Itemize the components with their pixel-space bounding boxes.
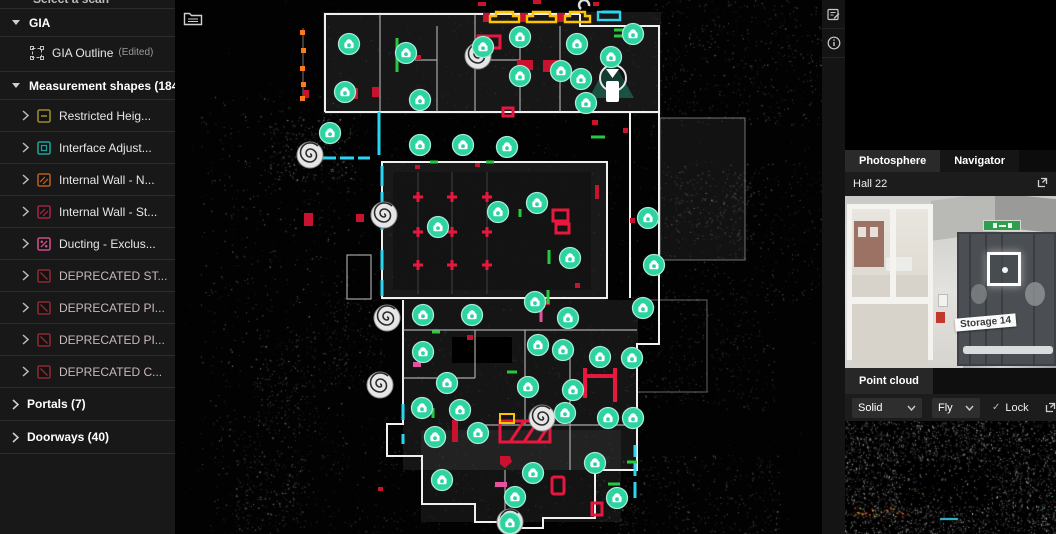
layers-sidebar: Select a scan GIA GIA Outline (Edited) M… — [0, 0, 175, 534]
scan-marker[interactable] — [563, 380, 584, 401]
caret-down-icon — [12, 20, 20, 25]
scan-marker[interactable] — [510, 66, 531, 87]
scan-marker[interactable] — [335, 82, 356, 103]
scan-marker[interactable] — [585, 453, 606, 474]
porthole-right — [1025, 282, 1045, 306]
sidebar-item-shape-8[interactable]: DEPRECATED C... — [0, 356, 175, 388]
item-suffix: (Edited) — [118, 47, 153, 58]
photosphere-nav-marker[interactable] — [987, 252, 1021, 286]
location-row: Hall 22 — [845, 172, 1056, 196]
scan-marker[interactable] — [413, 305, 434, 326]
scan-marker[interactable] — [607, 488, 628, 509]
fire-alarm — [936, 312, 945, 323]
canvas-tool-strip — [822, 0, 845, 534]
chevron-right-icon[interactable] — [22, 302, 29, 313]
tab-photosphere[interactable]: Photosphere — [845, 150, 940, 172]
clipped-item-label: Select a scan — [33, 0, 109, 6]
chevron-right-icon — [12, 432, 19, 443]
preview-tabbar: PhotosphereNavigator — [845, 150, 1056, 172]
scan-marker[interactable] — [410, 90, 431, 111]
survey-target — [529, 405, 555, 431]
sidebar-item-shape-1[interactable]: Interface Adjust... — [0, 132, 175, 164]
chevron-down-icon — [965, 405, 974, 411]
chevron-right-icon[interactable] — [22, 270, 29, 281]
scan-marker[interactable] — [425, 427, 446, 448]
item-label: GIA Outline — [52, 46, 113, 60]
scan-marker[interactable] — [505, 487, 526, 508]
group-label: Doorways (40) — [27, 430, 109, 444]
scan-marker[interactable] — [462, 305, 483, 326]
lock-label: Lock — [1005, 402, 1028, 414]
sidebar-item-clipped[interactable]: Select a scan — [0, 0, 175, 9]
item-label: DEPRECATED PI... — [59, 301, 165, 315]
info-button[interactable] — [822, 29, 845, 58]
scan-marker[interactable] — [413, 342, 434, 363]
scan-marker[interactable] — [622, 348, 643, 369]
sidebar-item-shape-3[interactable]: Internal Wall - St... — [0, 196, 175, 228]
door-push-bar — [963, 346, 1053, 354]
scan-marker[interactable] — [623, 24, 644, 45]
shape-type-icon — [37, 141, 51, 155]
open-photosphere-button[interactable] — [1037, 177, 1048, 191]
point-cloud-header: Point cloud — [845, 368, 1056, 394]
scan-marker[interactable] — [576, 93, 597, 114]
point-cloud-controls: Solid Fly ✓ Lock — [845, 394, 1056, 421]
scan-marker[interactable] — [623, 408, 644, 429]
scan-marker[interactable] — [560, 248, 581, 269]
exit-sign — [983, 220, 1021, 231]
nav-mode-select[interactable]: Fly — [932, 398, 980, 418]
render-mode-value: Solid — [858, 402, 882, 414]
scan-marker[interactable] — [518, 377, 539, 398]
scan-marker[interactable] — [644, 255, 665, 276]
item-label: Internal Wall - St... — [59, 205, 157, 219]
scan-marker[interactable] — [598, 408, 619, 429]
selection-outline-icon — [30, 46, 44, 60]
point-cloud-tab[interactable]: Point cloud — [845, 368, 933, 394]
shape-type-icon — [37, 205, 51, 219]
notes-icon — [827, 8, 840, 21]
scan-marker[interactable] — [500, 513, 521, 534]
survey-target — [371, 202, 397, 228]
chevron-right-icon[interactable] — [22, 206, 29, 217]
scan-marker[interactable] — [571, 69, 592, 90]
checkmark-icon: ✓ — [992, 402, 1000, 413]
scan-marker[interactable] — [525, 292, 546, 313]
chevron-right-icon[interactable] — [22, 334, 29, 345]
caret-down-icon — [12, 83, 20, 88]
measurement-items: Restricted Heig...Interface Adjust...Int… — [0, 100, 175, 388]
tab-navigator[interactable]: Navigator — [940, 150, 1019, 172]
scan-marker[interactable] — [567, 34, 588, 55]
shape-type-icon — [37, 237, 51, 251]
external-link-icon — [1045, 402, 1056, 413]
group-label: Portals (7) — [27, 397, 86, 411]
shape-type-icon — [37, 365, 51, 379]
external-link-icon — [1037, 177, 1048, 188]
curl-mark — [579, 0, 589, 9]
group-label: Measurement shapes (184) — [29, 79, 175, 93]
scan-marker[interactable] — [633, 298, 654, 319]
scan-marker[interactable] — [428, 217, 449, 238]
scan-marker[interactable] — [523, 463, 544, 484]
scan-marker[interactable] — [396, 43, 417, 64]
scan-marker[interactable] — [527, 193, 548, 214]
shape-type-icon — [37, 173, 51, 187]
annotation-overlay — [175, 0, 822, 534]
shape-type-icon — [37, 301, 51, 315]
folder-button[interactable] — [183, 10, 207, 30]
sidebar-group-doorways[interactable]: Doorways (40) — [0, 421, 175, 454]
folder-icon — [183, 10, 203, 26]
sidebar-item-shape-4[interactable]: Ducting - Exclus... — [0, 228, 175, 260]
photosphere-preview[interactable]: Storage 14 — [845, 196, 1056, 368]
item-label: DEPRECATED ST... — [59, 269, 167, 283]
render-mode-select[interactable]: Solid — [852, 398, 922, 418]
sidebar-group-gia[interactable]: GIA — [0, 9, 175, 37]
scan-marker[interactable] — [453, 135, 474, 156]
scan-marker[interactable] — [590, 347, 611, 368]
survey-target — [367, 372, 393, 398]
shape-type-icon — [37, 269, 51, 283]
location-label: Hall 22 — [853, 178, 887, 190]
point-cloud-preview[interactable] — [845, 421, 1056, 534]
floorplan-canvas[interactable] — [175, 0, 822, 534]
scan-marker[interactable] — [437, 373, 458, 394]
scan-marker[interactable] — [510, 27, 531, 48]
survey-target — [374, 305, 400, 331]
item-label: Restricted Heig... — [59, 109, 151, 123]
scan-marker[interactable] — [412, 398, 433, 419]
chevron-down-icon — [907, 405, 916, 411]
open-point-cloud-button[interactable] — [1045, 402, 1056, 413]
chevron-right-icon[interactable] — [22, 110, 29, 121]
scan-marker[interactable] — [432, 470, 453, 491]
nav-mode-value: Fly — [938, 402, 953, 414]
info-icon — [827, 36, 841, 50]
scan-marker-selected[interactable] — [601, 47, 622, 68]
sidebar-item-gia-outline[interactable]: GIA Outline (Edited) — [0, 37, 175, 68]
scan-marker[interactable] — [488, 202, 509, 223]
scan-marker[interactable] — [497, 137, 518, 158]
chevron-right-icon[interactable] — [22, 238, 29, 249]
item-label: Interface Adjust... — [59, 141, 152, 155]
scan-marker[interactable] — [339, 34, 360, 55]
sidebar-group-measurement-shapes[interactable]: Measurement shapes (184) — [0, 72, 175, 100]
item-label: DEPRECATED PI... — [59, 333, 165, 347]
survey-target — [297, 142, 323, 168]
notes-button[interactable] — [822, 0, 845, 29]
sidebar-group-portals[interactable]: Portals (7) — [0, 388, 175, 421]
item-label: DEPRECATED C... — [59, 365, 162, 379]
lock-checkbox[interactable]: ✓ Lock — [992, 402, 1029, 414]
scan-marker[interactable] — [468, 423, 489, 444]
chevron-right-icon[interactable] — [22, 366, 29, 377]
group-label: GIA — [29, 16, 50, 30]
item-label: Internal Wall - N... — [59, 173, 155, 187]
scan-marker[interactable] — [410, 135, 431, 156]
scan-marker[interactable] — [320, 123, 341, 144]
shape-type-icon — [37, 109, 51, 123]
scan-marker[interactable] — [551, 61, 572, 82]
chevron-right-icon[interactable] — [22, 142, 29, 153]
window — [847, 204, 933, 360]
scan-marker[interactable] — [638, 208, 659, 229]
chevron-right-icon — [12, 399, 19, 410]
sidebar-item-shape-7[interactable]: DEPRECATED PI... — [0, 324, 175, 356]
sidebar-item-shape-0[interactable]: Restricted Heig... — [0, 100, 175, 132]
scan-marker[interactable] — [558, 308, 579, 329]
porthole-left — [971, 284, 987, 304]
scan-marker[interactable] — [450, 400, 471, 421]
sidebar-item-shape-6[interactable]: DEPRECATED PI... — [0, 292, 175, 324]
scan-marker[interactable] — [553, 340, 574, 361]
shape-type-icon — [37, 333, 51, 347]
item-label: Ducting - Exclus... — [59, 237, 156, 251]
sidebar-item-shape-5[interactable]: DEPRECATED ST... — [0, 260, 175, 292]
scan-marker[interactable] — [473, 37, 494, 58]
wall-sign — [938, 294, 948, 307]
inspector-panel: PhotosphereNavigator Hall 22 — [845, 0, 1056, 534]
scan-marker[interactable] — [555, 403, 576, 424]
sidebar-item-shape-2[interactable]: Internal Wall - N... — [0, 164, 175, 196]
chevron-right-icon[interactable] — [22, 174, 29, 185]
scan-marker[interactable] — [528, 335, 549, 356]
